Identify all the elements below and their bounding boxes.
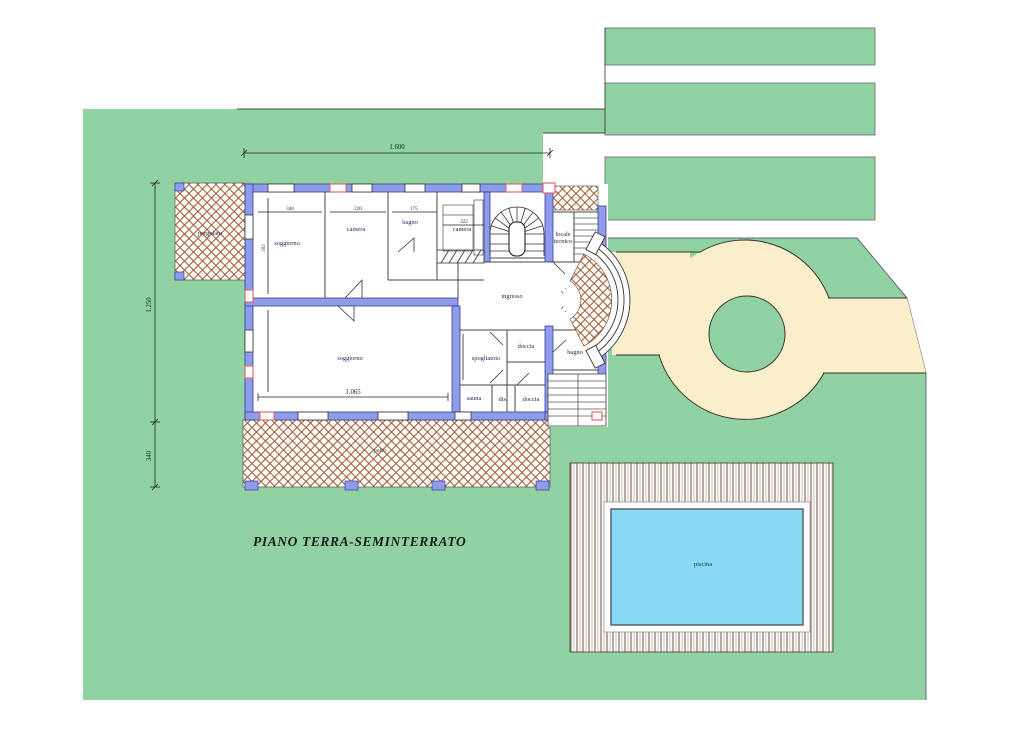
- label-doccia-upper: doccia: [518, 343, 535, 350]
- patio-pier: [536, 481, 549, 490]
- dim-overall-width: 1.600: [389, 144, 405, 151]
- wall-stair: [484, 192, 490, 262]
- plan-title: PIANO TERRA-SEMINTERRATO: [253, 534, 466, 549]
- patio-pier: [345, 481, 358, 490]
- dim-soggiorno-upper-h: 302: [261, 244, 267, 252]
- pool-area: piscina: [570, 463, 833, 652]
- patio-label: patio: [374, 447, 387, 454]
- terrace-band-3: [605, 157, 875, 220]
- lawn-notch: [543, 109, 605, 133]
- driveway-island: [709, 296, 785, 372]
- patio: patio: [243, 420, 550, 490]
- dim-room-1: 340: [286, 206, 294, 212]
- patio-surface: [243, 420, 550, 487]
- house: soggiorno camera bagno camera locale tec…: [245, 183, 631, 427]
- label-doccia-lower: doccia: [523, 396, 540, 403]
- label-camera-1: camera: [347, 226, 366, 233]
- label-disimpegno: dis.: [498, 396, 507, 403]
- upper-terrace: [552, 186, 598, 210]
- site-plan-page: piscina patio pergolato: [0, 0, 1024, 731]
- label-bagno-upper: bagno: [402, 219, 418, 226]
- patio-pier: [245, 481, 258, 490]
- patio-pier: [432, 481, 445, 490]
- label-bagno-lower: bagno: [567, 349, 583, 356]
- label-locale-tecnico-1: locale: [555, 231, 570, 238]
- dim-soggiorno-lower: 1.065: [345, 389, 361, 396]
- label-spogliatoio: spogliatoio: [472, 355, 500, 362]
- pergolato-post: [175, 183, 184, 191]
- pergolato-post: [175, 272, 184, 280]
- terrace-band-1: [605, 28, 875, 65]
- pergolato-label: pergolato: [198, 230, 222, 237]
- dim-left-lower: 340: [146, 450, 153, 461]
- terrace-band-2: [605, 83, 875, 135]
- dim-room-4: 322: [460, 219, 468, 225]
- label-ingresso: ingresso: [501, 293, 522, 300]
- hatch-strip: [437, 250, 484, 263]
- floor-plan-drawing: piscina patio pergolato: [0, 0, 1024, 731]
- dim-room-3: 175: [410, 206, 418, 212]
- wall-east-upper: [545, 184, 553, 262]
- wall-mid: [245, 298, 458, 306]
- label-soggiorno-lower: soggiorno: [337, 355, 363, 362]
- wall-rooms: [452, 306, 460, 412]
- dim-room-2: 220: [354, 206, 362, 212]
- pergolato: pergolato: [175, 183, 245, 280]
- pool-label: piscina: [694, 561, 712, 568]
- dim-left-upper: 1.250: [146, 297, 153, 313]
- label-sauna: sauna: [467, 395, 482, 402]
- label-camera-2: camera: [453, 226, 472, 233]
- label-locale-tecnico-2: tecnico: [554, 238, 572, 245]
- label-soggiorno-upper: soggiorno: [274, 240, 300, 247]
